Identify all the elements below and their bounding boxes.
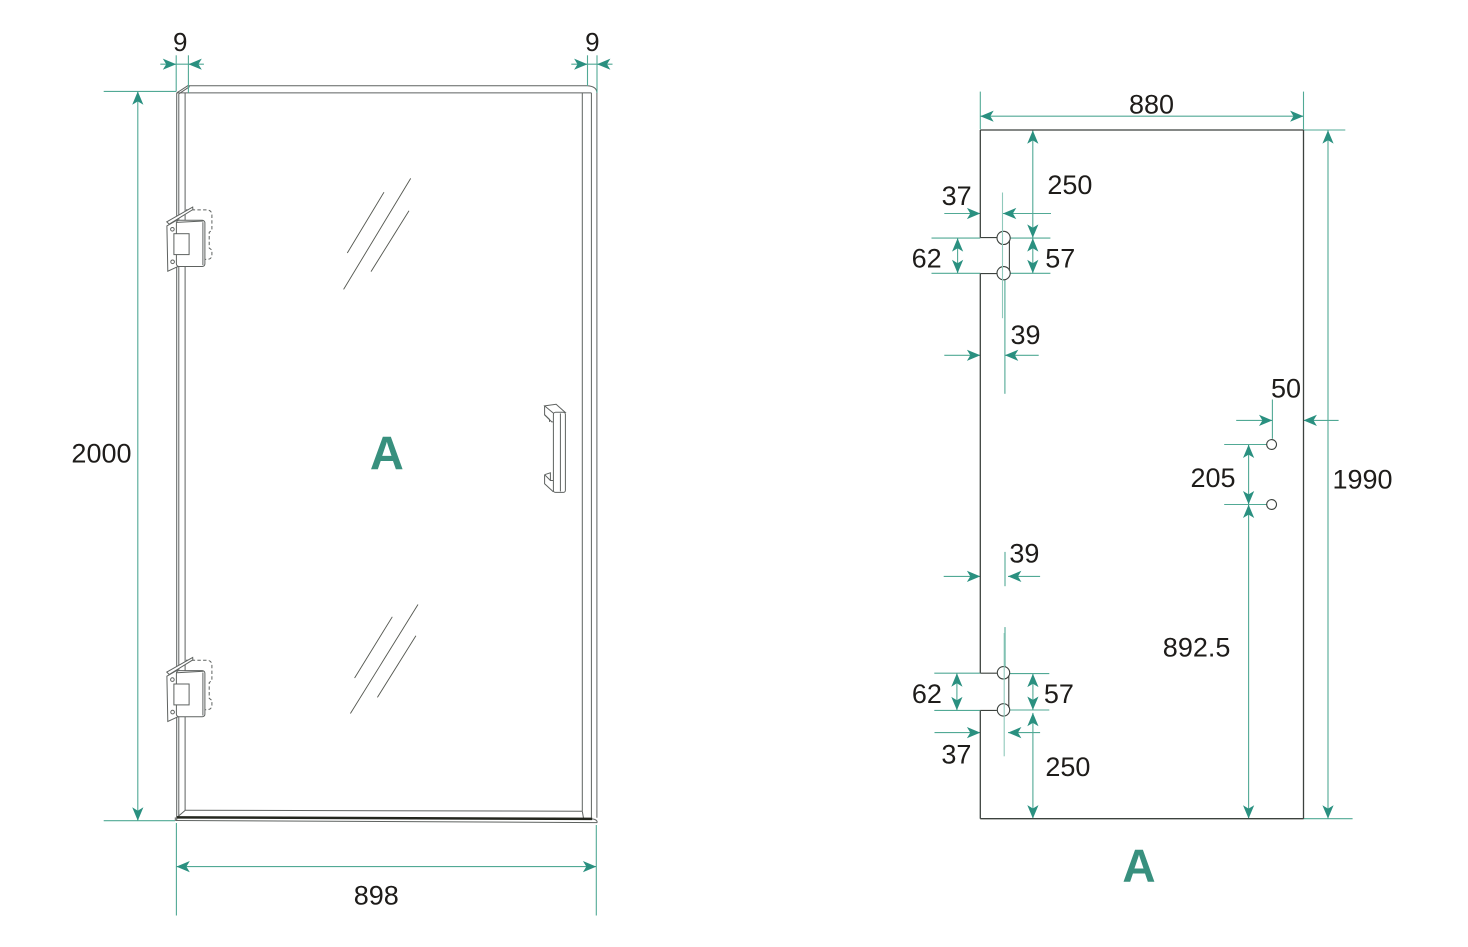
svg-text:892.5: 892.5 — [1163, 633, 1231, 663]
svg-text:A: A — [1122, 840, 1155, 892]
svg-text:9: 9 — [173, 27, 187, 57]
svg-text:880: 880 — [1129, 90, 1174, 120]
svg-text:898: 898 — [354, 881, 399, 911]
svg-text:37: 37 — [942, 181, 972, 211]
svg-text:62: 62 — [912, 679, 942, 709]
svg-text:2000: 2000 — [71, 439, 131, 469]
svg-text:39: 39 — [1010, 320, 1040, 350]
svg-text:62: 62 — [912, 244, 942, 274]
svg-text:205: 205 — [1190, 463, 1235, 493]
svg-text:250: 250 — [1047, 170, 1092, 200]
svg-text:39: 39 — [1009, 538, 1039, 568]
svg-text:57: 57 — [1044, 679, 1074, 709]
svg-text:57: 57 — [1045, 244, 1075, 274]
svg-text:9: 9 — [585, 27, 599, 57]
svg-text:1990: 1990 — [1333, 464, 1393, 494]
svg-text:50: 50 — [1271, 373, 1301, 403]
svg-text:250: 250 — [1045, 752, 1090, 782]
svg-text:A: A — [370, 426, 404, 479]
svg-text:37: 37 — [941, 740, 971, 770]
